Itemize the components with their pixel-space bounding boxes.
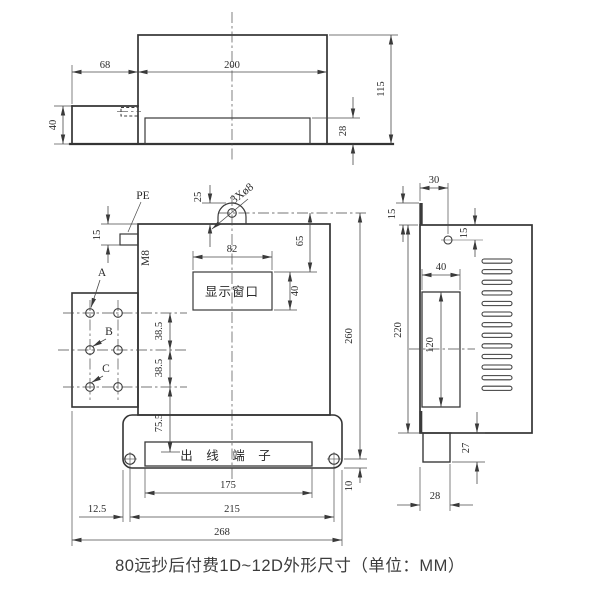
side-body-outline	[420, 225, 532, 433]
dim-12-5-label: 12.5	[88, 504, 106, 515]
top-view: 68 200 115 28 40	[48, 12, 398, 165]
side-top-tab	[419, 203, 422, 225]
dim-38-label: 38.5	[154, 322, 165, 340]
engineering-drawing-canvas: 68 200 115 28 40 3Xø8 25 PE M8 1	[0, 0, 600, 600]
dim-27-label: 27	[461, 443, 472, 454]
side-view: 120 40 27 28 220 15 30 15	[387, 175, 532, 511]
dim-175-label: 175	[220, 480, 236, 491]
dim-10-label: 10	[344, 481, 355, 492]
dim-40-label: 40	[48, 120, 59, 131]
drawing-caption: 80远抄后付费1D~12D外形尺寸（单位：MM）	[115, 556, 465, 575]
dim-260-label: 260	[344, 328, 355, 344]
pe-terminal-tab	[120, 234, 138, 245]
phase-c-leader	[92, 376, 104, 383]
top-view-recess	[145, 118, 310, 144]
dim-215-label: 215	[224, 504, 240, 515]
dim-220-label: 220	[393, 322, 404, 338]
dim-38-label-2: 38.5	[154, 359, 165, 377]
dim-28-label: 28	[430, 491, 441, 502]
side-bottom-protrusion	[423, 433, 450, 462]
top-view-body-outline	[138, 35, 327, 144]
dim-65-label: 65	[295, 236, 306, 247]
dim-15-hole-label: 15	[459, 228, 470, 239]
phase-c-label: C	[102, 363, 110, 375]
dim-82-label: 82	[227, 244, 238, 255]
phase-b-label: B	[105, 326, 113, 338]
phase-a-label: A	[98, 267, 107, 279]
dim-200-label: 200	[224, 60, 240, 71]
vent-slots	[482, 259, 512, 390]
dim-40-label: 40	[290, 286, 301, 297]
dim-75-label: 75.5	[154, 414, 165, 432]
dim-15-top-label: 15	[387, 209, 398, 220]
phase-b-leader	[93, 339, 107, 347]
dim-25-label: 25	[193, 192, 204, 203]
dim-268-label: 268	[214, 527, 230, 538]
front-view: 3Xø8 25 PE M8 15 显示窗口 82 40 65 260 10	[58, 181, 367, 546]
side-bottom-tab	[419, 411, 422, 433]
dim-30-label: 30	[429, 175, 440, 186]
dim-40-label: 40	[436, 262, 447, 273]
dim-68-label: 68	[100, 60, 111, 71]
display-window-label: 显示窗口	[205, 285, 259, 299]
m8-label: M8	[140, 250, 152, 266]
dim-120-label: 120	[425, 337, 436, 353]
hole-note-label: 3Xø8	[228, 181, 256, 206]
pe-label: PE	[136, 190, 149, 202]
dim-115-label: 115	[376, 81, 387, 96]
dim-28-label: 28	[338, 126, 349, 137]
outlet-terminal-label: 出 线 端 子	[180, 449, 275, 463]
pe-leader	[128, 202, 141, 232]
dim-15-label: 15	[92, 230, 103, 241]
